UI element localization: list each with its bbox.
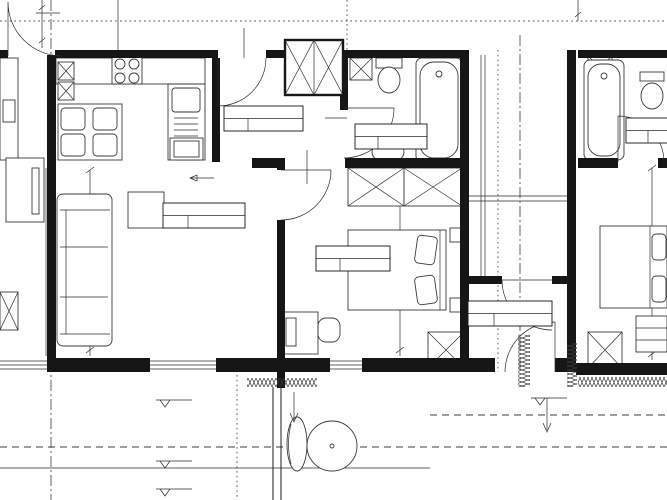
- right-dresser: [636, 316, 667, 352]
- label-pokoj: [316, 246, 390, 271]
- terrace-divider-wall: [273, 387, 281, 500]
- floor-plan-drawing: [0, 0, 667, 500]
- label-przedpokoj: [224, 106, 303, 131]
- hatch-strip: [247, 378, 317, 387]
- ventilation-shaft: [285, 40, 343, 95]
- bed: [600, 226, 667, 308]
- left-flat-shaft: [0, 292, 18, 330]
- appliance-boxes: [58, 62, 74, 100]
- level-minus-010: [156, 489, 192, 496]
- dining-table: [58, 104, 122, 160]
- desk-chair: [318, 318, 340, 342]
- left-flat-sink: [3, 100, 15, 122]
- label-lazienka: [355, 124, 427, 149]
- patio-chair: [287, 417, 307, 471]
- level-minus-003: [156, 461, 192, 468]
- hatch-strip: [567, 343, 577, 387]
- washer: [350, 58, 372, 80]
- level-markers: [156, 392, 567, 496]
- toilet-bowl: [378, 67, 400, 93]
- right-flat: [584, 56, 667, 368]
- right-toilet: [640, 72, 664, 109]
- dining-set: [58, 104, 122, 160]
- desk-area: [282, 312, 340, 354]
- corridor-floor-lines: [467, 55, 567, 276]
- terrace: [287, 417, 357, 471]
- sink-basin: [172, 88, 200, 112]
- sofa: [57, 194, 112, 346]
- right-wardrobe: [588, 332, 622, 368]
- sink-drainer: [174, 118, 198, 136]
- label-pokoj-aneks: [163, 203, 245, 228]
- kitchen-sink: [172, 88, 200, 136]
- hatch-strip: [518, 335, 530, 387]
- level-symbol: [531, 398, 567, 405]
- patio-table: [307, 421, 357, 471]
- fridge: [170, 138, 203, 160]
- hatch-strip: [578, 377, 667, 387]
- wardrobes: [348, 168, 462, 206]
- right-bed: [600, 226, 667, 308]
- toilet-tank: [640, 72, 664, 81]
- door-bedroom: [281, 170, 331, 220]
- toilet: [376, 58, 402, 93]
- level-minus-002-right: [531, 398, 567, 405]
- cooktop: [112, 56, 142, 84]
- living-room: [57, 192, 164, 346]
- label-wiatrolap: [468, 301, 552, 326]
- label-lazienka-right: [626, 118, 667, 143]
- level-symbol: [156, 489, 192, 496]
- dim-arrow-116: [190, 175, 214, 181]
- left-flat-tv: [32, 168, 39, 214]
- door-left-flat: [8, 2, 62, 56]
- toilet-bowl: [641, 83, 663, 109]
- kitchen: [56, 56, 205, 160]
- shaft-x: [0, 292, 18, 330]
- toilet-tank: [376, 58, 402, 68]
- level-symbol: [156, 461, 192, 468]
- floor-plan-sheet: [0, 0, 667, 500]
- level-symbol: [156, 400, 192, 407]
- level-minus-002-left: [156, 400, 192, 407]
- coffee-table: [128, 192, 164, 228]
- door-entry-przedpokoj: [218, 58, 266, 106]
- left-flat: [0, 58, 44, 330]
